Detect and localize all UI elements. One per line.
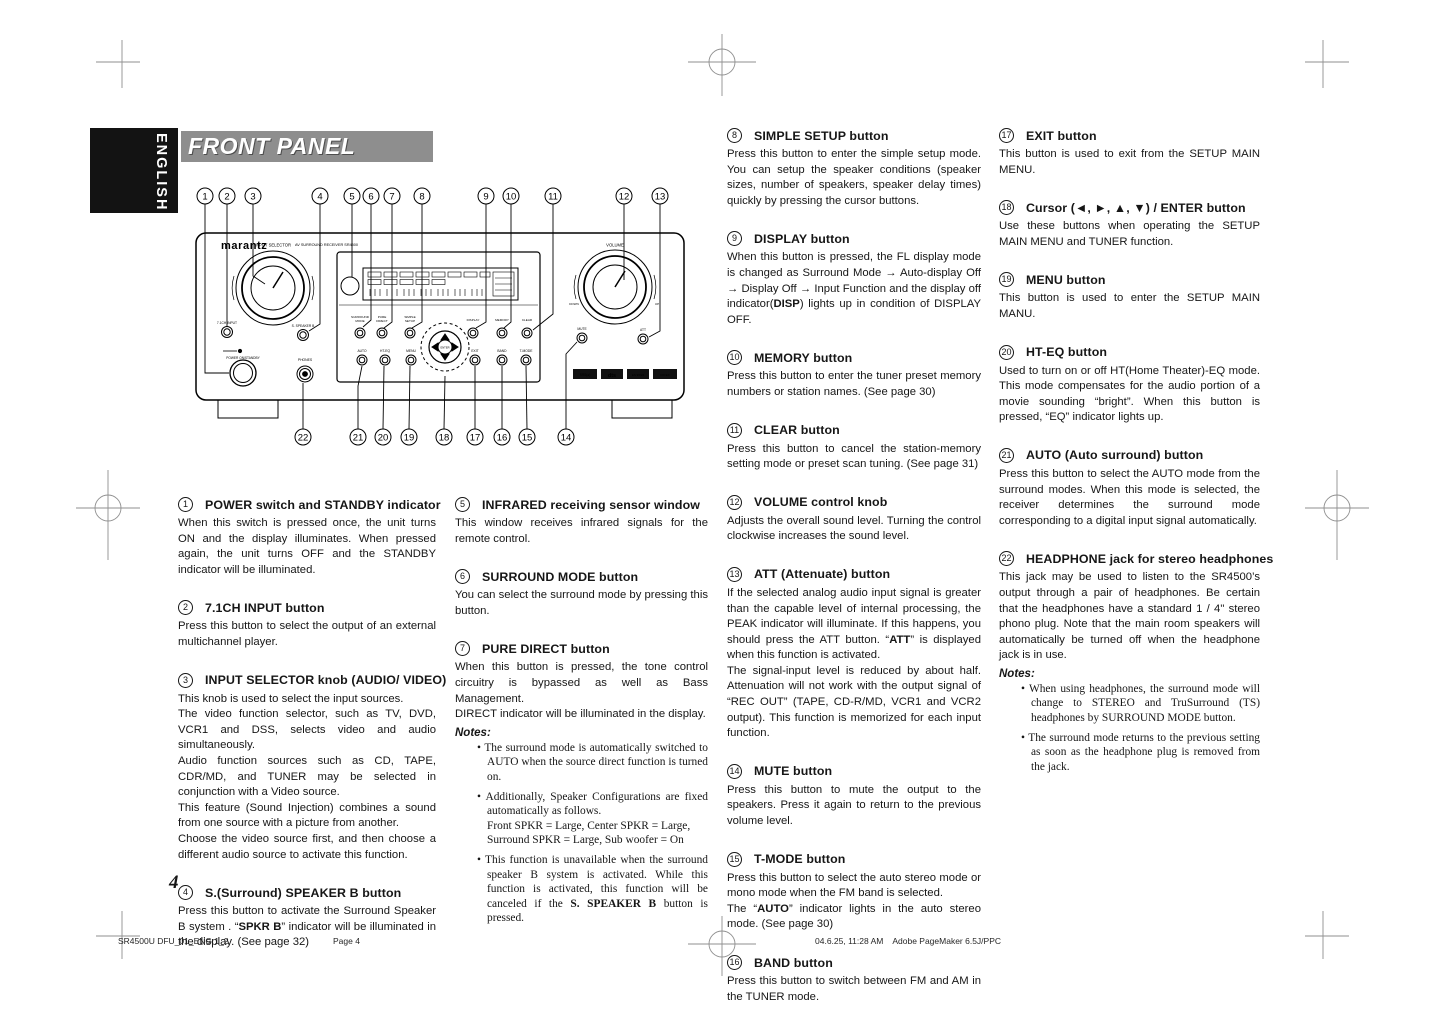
section-5: 5INFRARED receiving sensor windowThis wi… [455, 497, 708, 547]
section-11: 11CLEAR buttonPress this button to cance… [727, 423, 981, 473]
svg-text:20: 20 [378, 432, 389, 443]
surround-mode-button: SURROUND MODE [351, 315, 370, 338]
section-heading: 21AUTO (Auto surround) button [999, 448, 1260, 463]
section-heading: 1POWER switch and STANDBY indicator [178, 497, 436, 512]
svg-text:4: 4 [317, 191, 322, 202]
callout-number: 22 [999, 551, 1014, 566]
svg-text:18: 18 [439, 432, 450, 443]
svg-text:MODE: MODE [355, 319, 364, 323]
t-mode-button: T-MODE [520, 349, 534, 365]
section-title: INFRARED receiving sensor window [482, 498, 700, 512]
page-title-bar: FRONT PANEL [181, 131, 433, 162]
svg-text:9: 9 [483, 191, 488, 202]
svg-text:MENU: MENU [406, 349, 416, 353]
cursor-down-icon [441, 354, 449, 360]
speaker-b-button: S. SPEAKER B [292, 324, 316, 341]
svg-text:15: 15 [522, 432, 533, 443]
volume-knob: VOLUME DOWN UP [569, 243, 659, 325]
svg-text:HT-EQ: HT-EQ [380, 349, 391, 353]
svg-text:MUTE: MUTE [577, 327, 587, 331]
callout-number: 2 [178, 600, 193, 615]
section-paragraph: Press this button to select the auto ste… [727, 871, 981, 902]
svg-text:DOWN: DOWN [569, 302, 579, 306]
svg-text:BAND: BAND [497, 349, 507, 353]
section-paragraph: The video function selector, such as TV,… [178, 707, 436, 754]
callout-number: 13 [727, 567, 742, 582]
section-paragraph: Press this button to select the output o… [178, 619, 436, 650]
auto-button: AUTO [357, 349, 367, 365]
svg-text:DISPLAY: DISPLAY [467, 318, 480, 322]
svg-text:CLEAR: CLEAR [522, 318, 533, 322]
section-paragraph: If the selected analog audio input signa… [727, 586, 981, 664]
section-title: VOLUME control knob [754, 495, 887, 509]
crop-mark-top-left [96, 40, 140, 88]
svg-text:DIRECT: DIRECT [376, 319, 388, 323]
band-button: BAND [497, 349, 507, 365]
input-selector-knob: INPUT SELECTOR [232, 243, 314, 326]
section-3: 3INPUT SELECTOR knob (AUDIO/ VIDEO)This … [178, 673, 436, 864]
svg-text:T-MODE: T-MODE [520, 349, 534, 353]
section-20: 20HT-EQ buttonUsed to turn on or off HT(… [999, 345, 1260, 426]
notes-list: The surround mode is automatically switc… [455, 741, 708, 926]
section-paragraph: When this switch is pressed once, the un… [178, 516, 436, 578]
section-heading: 22HEADPHONE jack for stereo headphones [999, 551, 1260, 566]
section-1: 1POWER switch and STANDBY indicatorWhen … [178, 497, 436, 578]
section-heading: 15T-MODE button [727, 852, 981, 867]
crop-mark-bottom-left [96, 911, 140, 959]
section-paragraph: This button is used to enter the SETUP M… [999, 291, 1260, 322]
note-item: Additionally, Speaker Configurations are… [477, 790, 708, 848]
footer-page-label: Page 4 [333, 936, 360, 946]
memory-button: MEMORY [495, 318, 509, 338]
section-17: 17EXIT buttonThis button is used to exit… [999, 128, 1260, 178]
section-title: SIMPLE SETUP button [754, 129, 889, 143]
section-title: PURE DIRECT button [482, 642, 610, 656]
section-title: 7.1CH INPUT button [205, 601, 325, 615]
mute-button: MUTE [577, 327, 587, 343]
section-heading: 3INPUT SELECTOR knob (AUDIO/ VIDEO) [178, 673, 436, 688]
section-18: 18Cursor (◄, ►, ▲, ▼) / ENTER buttonUse … [999, 200, 1260, 250]
section-13: 13ATT (Attenuate) buttonIf the selected … [727, 567, 981, 742]
callout-number: 11 [727, 423, 742, 438]
svg-text:17: 17 [470, 432, 481, 443]
section-paragraph: Press this button to switch between FM a… [727, 974, 981, 1005]
section-heading: 19MENU button [999, 272, 1260, 287]
callout-number: 14 [727, 764, 742, 779]
section-title: Cursor (◄, ►, ▲, ▼) / ENTER button [1026, 201, 1246, 215]
section-heading: 11CLEAR button [727, 423, 981, 438]
svg-text:EXIT: EXIT [471, 349, 478, 353]
callout-number: 17 [999, 128, 1014, 143]
receiver-foot-left [218, 400, 278, 418]
section-heading: 27.1CH INPUT button [178, 600, 436, 615]
badge-dd: DD EX [660, 373, 669, 377]
section-paragraph: Press this button to mute the output to … [727, 783, 981, 830]
section-title: INPUT SELECTOR knob (AUDIO/ VIDEO) [205, 673, 446, 687]
svg-text:7: 7 [389, 191, 394, 202]
svg-text:AUTO: AUTO [357, 349, 367, 353]
section-title: ATT (Attenuate) button [754, 567, 890, 581]
callout-number: 7 [455, 641, 470, 656]
section-paragraph: This feature (Sound Injection) combines … [178, 801, 436, 832]
svg-text:ATT: ATT [640, 328, 646, 332]
section-heading: 12VOLUME control knob [727, 495, 981, 510]
section-12: 12VOLUME control knobAdjusts the overall… [727, 495, 981, 545]
power-button: POWER ON/STANDBY [226, 356, 260, 386]
section-heading: 4S.(Surround) SPEAKER B button [178, 885, 436, 900]
section-7: 7PURE DIRECT buttonWhen this button is p… [455, 641, 708, 926]
cursor-up-icon [441, 334, 449, 340]
cursor-left-icon [432, 343, 438, 351]
section-paragraph: This jack may be used to listen to the S… [999, 570, 1260, 664]
footer-print-info: 04.6.25, 11:28 AM Adobe PageMaker 6.5J/P… [815, 936, 1001, 946]
fl-display [363, 268, 518, 300]
svg-text:11: 11 [548, 191, 558, 202]
callout-number: 5 [455, 497, 470, 512]
callouts-top: 1 2 3 4 5 6 7 8 9 10 11 12 13 [197, 188, 668, 204]
badge-dts: dts [608, 373, 616, 379]
note-item: This function is unavailable when the su… [477, 853, 708, 926]
svg-text:PHONES: PHONES [298, 358, 313, 362]
section-title: MENU button [1026, 273, 1106, 287]
svg-text:2: 2 [224, 191, 229, 202]
callout-number: 1 [178, 497, 193, 512]
section-14: 14MUTE buttonPress this button to mute t… [727, 764, 981, 830]
section-paragraph: You can select the surround mode by pres… [455, 588, 708, 619]
section-heading: 20HT-EQ button [999, 345, 1260, 360]
section-title: AUTO (Auto surround) button [1026, 448, 1203, 462]
language-tab: ENGLISH [90, 128, 178, 213]
ht-eq-button: HT-EQ [380, 349, 391, 365]
section-heading: 5INFRARED receiving sensor window [455, 497, 708, 512]
section-title: DISPLAY button [754, 232, 850, 246]
registration-mark-left [76, 470, 140, 560]
section-title: HEADPHONE jack for stereo headphones [1026, 552, 1273, 566]
section-title: BAND button [754, 956, 833, 970]
callout-number: 4 [178, 885, 193, 900]
crop-mark-top-right [1305, 40, 1349, 88]
section-title: MEMORY button [754, 351, 852, 365]
badge-srs: SRS(●) [580, 373, 591, 377]
section-paragraph: Choose the video source first, and then … [178, 832, 436, 863]
exit-button: EXIT [470, 349, 480, 365]
section-paragraph: This window receives infrared signals fo… [455, 516, 708, 547]
headphone-jack: PHONES [297, 358, 313, 382]
section-16: 16BAND buttonPress this button to switch… [727, 955, 981, 1005]
callout-number: 8 [727, 128, 742, 143]
notes-label: Notes: [999, 668, 1260, 680]
section-title: EXIT button [1026, 129, 1097, 143]
section-10: 10MEMORY buttonPress this button to ente… [727, 350, 981, 400]
callout-number: 12 [727, 495, 742, 510]
section-title: MUTE button [754, 764, 832, 778]
svg-text:5: 5 [349, 191, 354, 202]
svg-text:8: 8 [419, 191, 424, 202]
callout-leader-lines [205, 204, 660, 429]
page-number: 4 [169, 872, 179, 894]
registration-mark-top-center [688, 34, 756, 96]
svg-text:14: 14 [561, 432, 572, 443]
receiver-chassis [196, 233, 684, 418]
svg-text:MEMORY: MEMORY [495, 318, 509, 322]
section-paragraph: Used to turn on or off HT(Home Theater)-… [999, 364, 1260, 426]
format-badges: SRS(●) dts ES 96/24 DD EX [573, 369, 677, 379]
callout-number: 20 [999, 345, 1014, 360]
callout-number: 15 [727, 852, 742, 867]
section-paragraph: Press this button to cancel the station-… [727, 442, 981, 473]
registration-mark-right [1305, 470, 1369, 560]
notes-label: Notes: [455, 727, 708, 739]
section-paragraph: Press this button to select the AUTO mod… [999, 467, 1260, 529]
section-paragraph: When this button is pressed, the tone co… [455, 660, 708, 707]
section-title: S.(Surround) SPEAKER B button [205, 886, 401, 900]
cursor-enter-pad: ENTER [421, 323, 469, 371]
badge-es: ES 96/24 [632, 373, 645, 377]
section-heading: 16BAND button [727, 955, 981, 970]
section-paragraph: The “AUTO” indicator lights in the auto … [727, 902, 981, 933]
svg-text:UP: UP [655, 302, 659, 306]
column-1: 1POWER switch and STANDBY indicatorWhen … [178, 497, 436, 973]
section-6: 6SURROUND MODE buttonYou can select the … [455, 569, 708, 619]
cursor-right-icon [452, 343, 458, 351]
section-paragraph: Press this button to enter the simple se… [727, 147, 981, 209]
section-heading: 10MEMORY button [727, 350, 981, 365]
section-title: HT-EQ button [1026, 345, 1107, 359]
section-heading: 14MUTE button [727, 764, 981, 779]
section-heading: 8SIMPLE SETUP button [727, 128, 981, 143]
svg-text:19: 19 [404, 432, 415, 443]
svg-text:16: 16 [497, 432, 508, 443]
receiver-foot-right [612, 400, 672, 418]
callout-number: 19 [999, 272, 1014, 287]
callout-number: 3 [178, 673, 193, 688]
section-paragraph: This knob is used to select the input so… [178, 692, 436, 708]
svg-text:1: 1 [202, 191, 207, 202]
svg-text:22: 22 [298, 432, 309, 443]
column-4: 17EXIT buttonThis button is used to exit… [999, 128, 1260, 796]
section-heading: 9DISPLAY button [727, 231, 981, 246]
section-title: POWER switch and STANDBY indicator [205, 498, 441, 512]
section-heading: 6SURROUND MODE button [455, 569, 708, 584]
standby-indicator [223, 349, 242, 352]
front-panel-diagram: marantz AV SURROUND RECEIVER SR4500 INPU… [193, 186, 693, 462]
section-paragraph: Use these buttons when operating the SET… [999, 219, 1260, 250]
section-2: 27.1CH INPUT buttonPress this button to … [178, 600, 436, 650]
section-paragraph: The signal-input level is reduced by abo… [727, 664, 981, 742]
section-title: CLEAR button [754, 423, 840, 437]
callout-number: 21 [999, 448, 1014, 463]
section-heading: 7PURE DIRECT button [455, 641, 708, 656]
note-item: The surround mode returns to the previou… [1021, 731, 1260, 775]
notes-list: When using headphones, the surround mode… [999, 682, 1260, 775]
svg-text:ENTER: ENTER [440, 345, 449, 349]
section-22: 22HEADPHONE jack for stereo headphonesTh… [999, 551, 1260, 774]
svg-text:12: 12 [619, 191, 630, 202]
page-title: FRONT PANEL [181, 133, 355, 160]
svg-text:VOLUME: VOLUME [606, 243, 624, 248]
svg-text:10: 10 [506, 191, 517, 202]
section-heading: 18Cursor (◄, ►, ▲, ▼) / ENTER button [999, 200, 1260, 215]
language-label: ENGLISH [153, 133, 169, 213]
note-item: The surround mode is automatically switc… [477, 741, 708, 785]
svg-text:3: 3 [250, 191, 255, 202]
section-paragraph: DIRECT indicator will be illuminated in … [455, 707, 708, 723]
section-heading: 17EXIT button [999, 128, 1260, 143]
section-paragraph: Adjusts the overall sound level. Turning… [727, 514, 981, 545]
section-paragraph: Press this button to enter the tuner pre… [727, 369, 981, 400]
column-3: 8SIMPLE SETUP buttonPress this button to… [727, 128, 981, 1027]
section-9: 9DISPLAY buttonWhen this button is press… [727, 231, 981, 328]
section-title: T-MODE button [754, 852, 845, 866]
svg-text:6: 6 [368, 191, 373, 202]
section-15: 15T-MODE buttonPress this button to sele… [727, 852, 981, 933]
att-button: ATT [638, 328, 648, 344]
callout-number: 9 [727, 231, 742, 246]
column-2: 5INFRARED receiving sensor windowThis wi… [455, 497, 708, 948]
callout-number: 10 [727, 350, 742, 365]
callout-number: 16 [727, 955, 742, 970]
section-title: SURROUND MODE button [482, 570, 638, 584]
clear-button: CLEAR [522, 318, 533, 338]
svg-text:S. SPEAKER B: S. SPEAKER B [292, 324, 316, 328]
callouts-bottom: 22 21 20 19 18 17 16 15 14 [295, 429, 574, 445]
section-heading: 13ATT (Attenuate) button [727, 567, 981, 582]
svg-text:INPUT SELECTOR: INPUT SELECTOR [255, 243, 291, 248]
crop-mark-bottom-right [1305, 911, 1349, 959]
footer-document-name: SR4500U DFU_01_ENG 1_2 [118, 936, 229, 946]
section-paragraph: When this button is pressed, the FL disp… [727, 250, 981, 328]
svg-text:SETUP: SETUP [405, 319, 415, 323]
callout-number: 6 [455, 569, 470, 584]
menu-button: MENU [406, 349, 416, 365]
ir-sensor-window [341, 277, 359, 295]
svg-text:13: 13 [655, 191, 666, 202]
section-21: 21AUTO (Auto surround) buttonPress this … [999, 448, 1260, 529]
section-8: 8SIMPLE SETUP buttonPress this button to… [727, 128, 981, 209]
model-label: AV SURROUND RECEIVER SR4500 [295, 243, 358, 247]
note-item: When using headphones, the surround mode… [1021, 682, 1260, 726]
section-paragraph: Audio function sources such as CD, TAPE,… [178, 754, 436, 801]
callout-number: 18 [999, 200, 1014, 215]
svg-text:21: 21 [353, 432, 364, 443]
section-paragraph: This button is used to exit from the SET… [999, 147, 1260, 178]
display-button: DISPLAY [467, 318, 480, 338]
section-19: 19MENU buttonThis button is used to ente… [999, 272, 1260, 322]
